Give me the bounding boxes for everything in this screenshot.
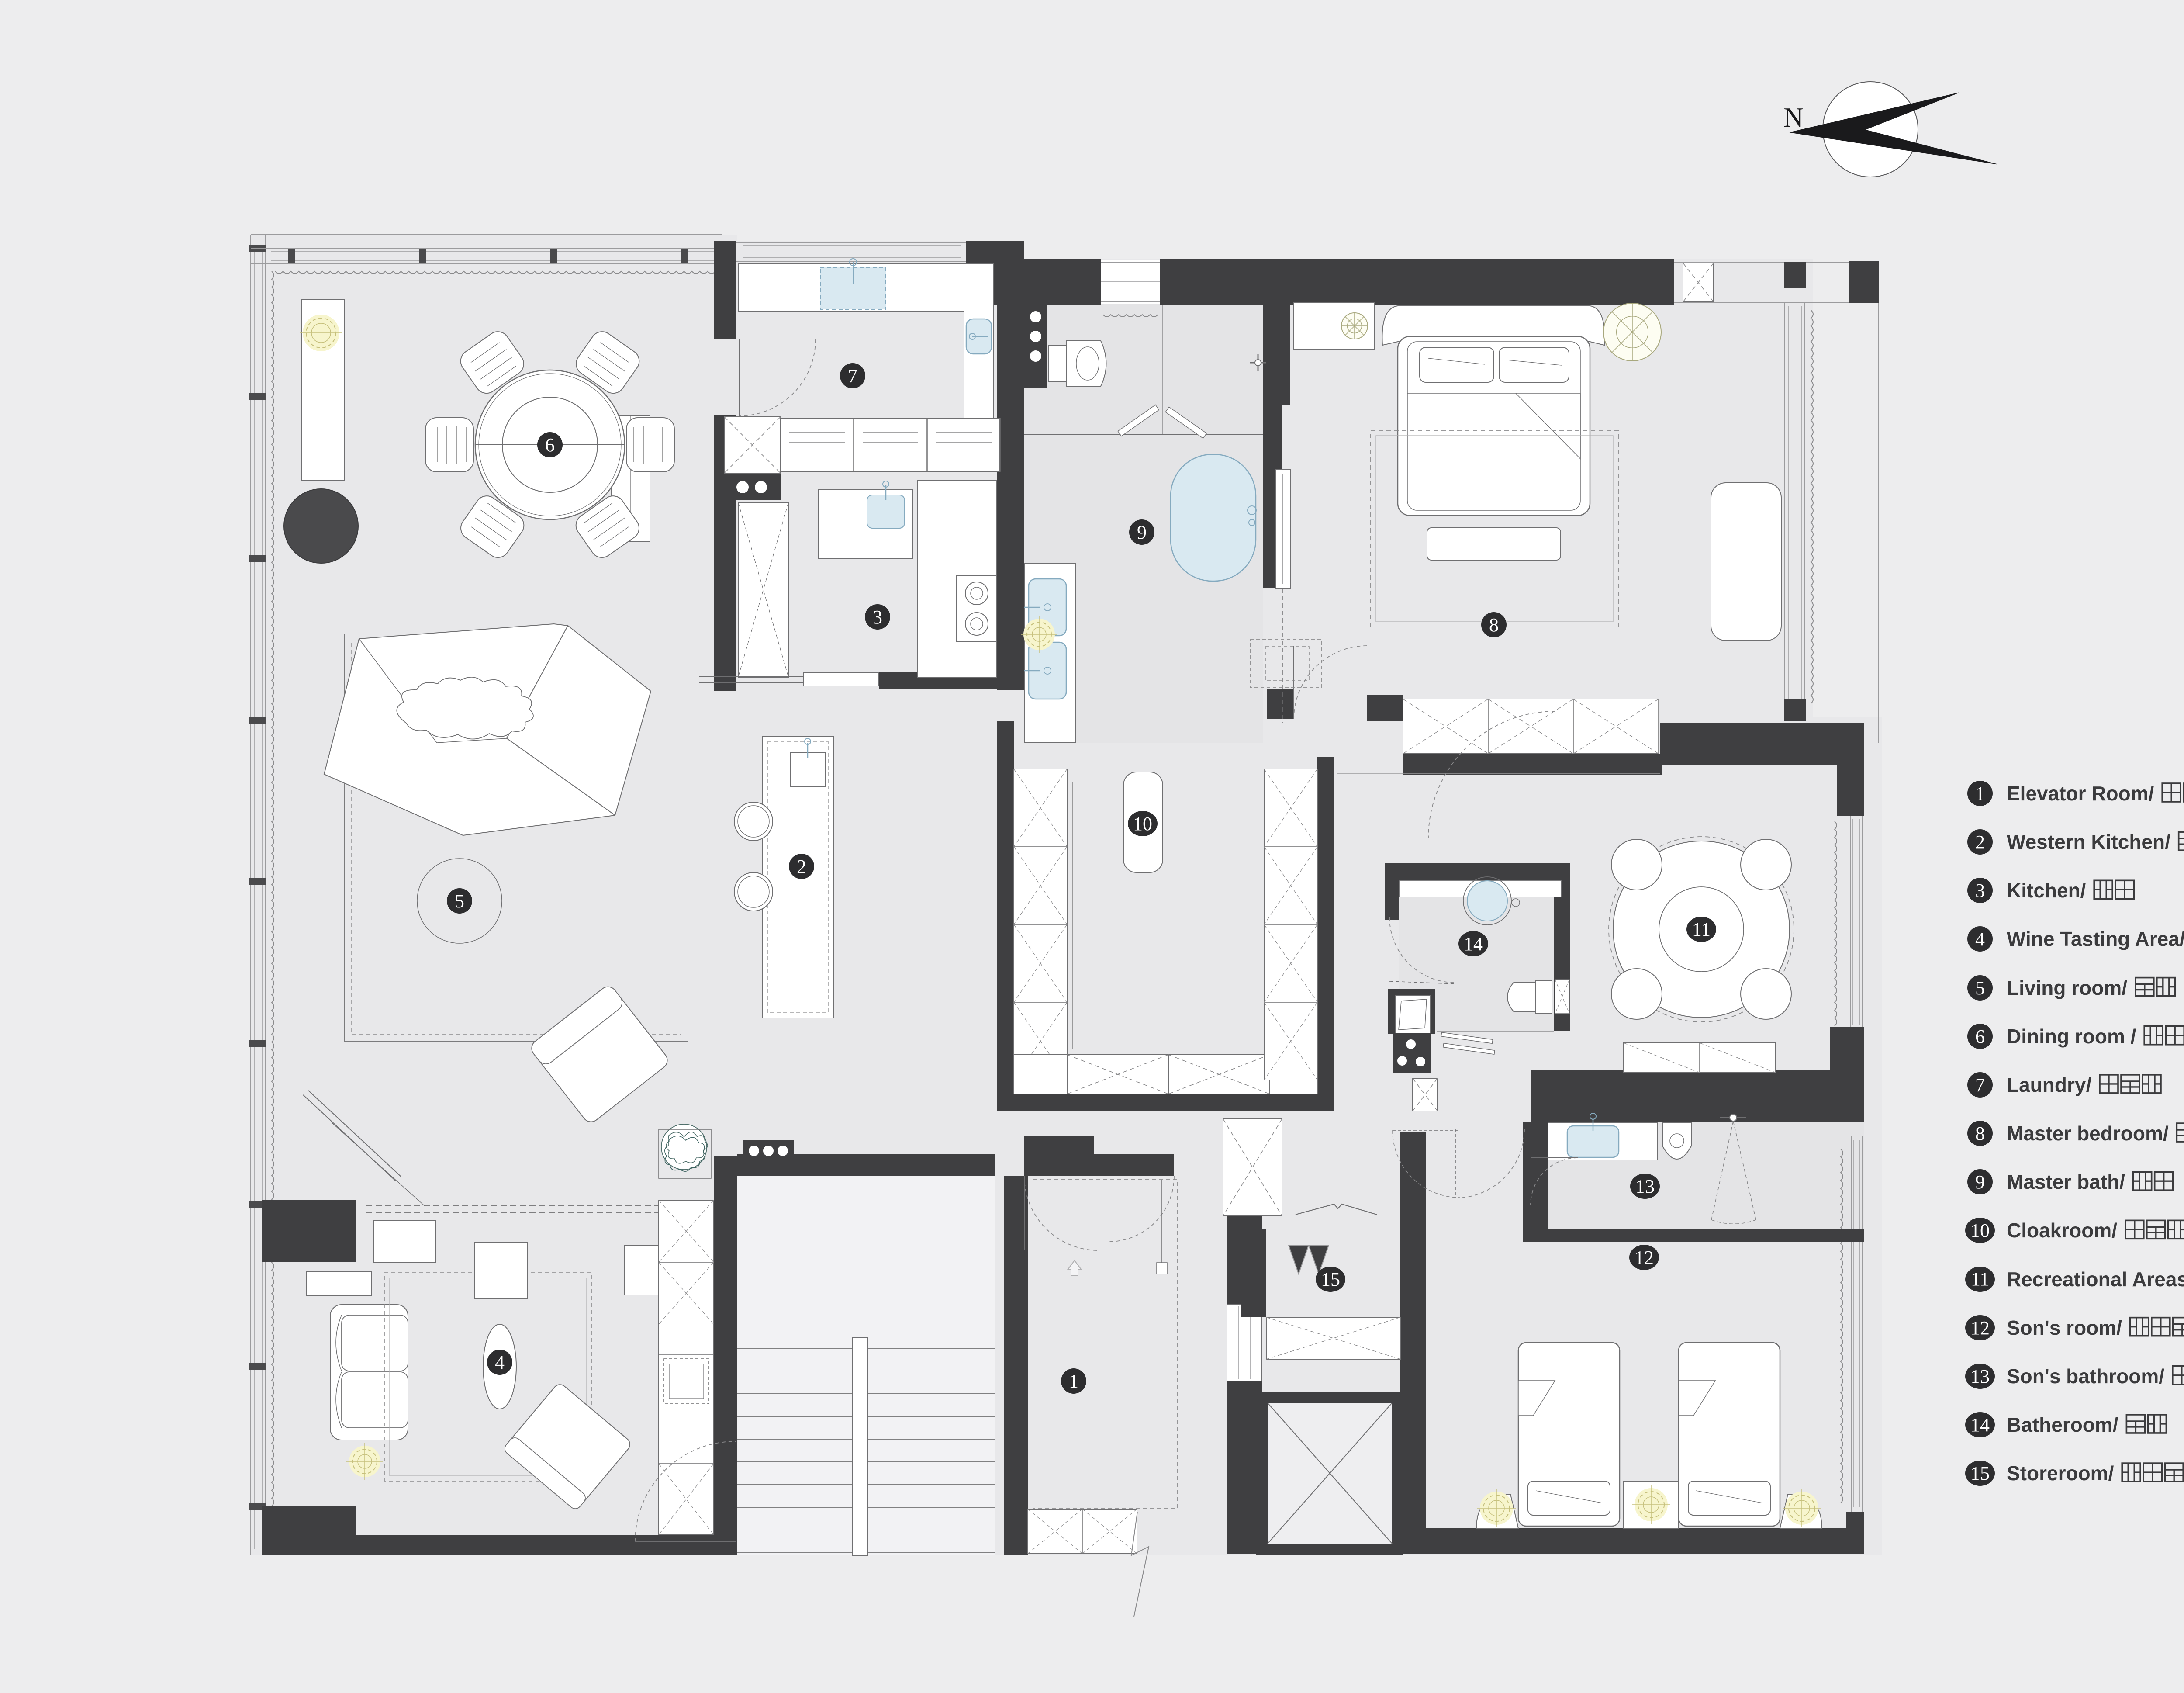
svg-text:Living room/: Living room/ bbox=[2007, 976, 2127, 999]
svg-text:15: 15 bbox=[1321, 1269, 1340, 1290]
svg-text:1: 1 bbox=[1069, 1371, 1078, 1392]
svg-text:11: 11 bbox=[1971, 1268, 1989, 1290]
svg-text:1: 1 bbox=[1975, 783, 1985, 804]
svg-text:Master bath/: Master bath/ bbox=[2007, 1170, 2125, 1193]
svg-text:6: 6 bbox=[545, 434, 555, 456]
svg-text:Master bedroom/: Master bedroom/ bbox=[2007, 1122, 2169, 1145]
svg-text:Cloakroom/: Cloakroom/ bbox=[2007, 1219, 2117, 1242]
svg-text:15: 15 bbox=[1970, 1463, 1990, 1484]
svg-text:5: 5 bbox=[455, 890, 464, 912]
svg-text:Western Kitchen/: Western Kitchen/ bbox=[2007, 831, 2170, 853]
svg-text:11: 11 bbox=[1692, 919, 1711, 940]
svg-text:2: 2 bbox=[797, 856, 806, 877]
svg-text:9: 9 bbox=[1137, 522, 1147, 543]
svg-text:Elevator Room/: Elevator Room/ bbox=[2007, 782, 2154, 805]
svg-text:3: 3 bbox=[873, 606, 882, 628]
svg-text:9: 9 bbox=[1975, 1171, 1985, 1193]
svg-text:8: 8 bbox=[1975, 1123, 1985, 1144]
svg-text:8: 8 bbox=[1489, 614, 1499, 636]
svg-text:Recreational Areas/: Recreational Areas/ bbox=[2007, 1268, 2184, 1291]
svg-text:13: 13 bbox=[1970, 1366, 1990, 1387]
svg-text:Dining room /: Dining room / bbox=[2007, 1025, 2136, 1048]
svg-text:Storeroom/: Storeroom/ bbox=[2007, 1462, 2114, 1485]
svg-text:N: N bbox=[1783, 102, 1804, 133]
svg-text:Laundry/: Laundry/ bbox=[2007, 1073, 2091, 1096]
svg-text:Kitchen/: Kitchen/ bbox=[2007, 879, 2086, 902]
svg-text:Son's bathroom/: Son's bathroom/ bbox=[2007, 1365, 2164, 1388]
svg-text:7: 7 bbox=[1975, 1074, 1985, 1096]
svg-text:Son's room/: Son's room/ bbox=[2007, 1316, 2122, 1339]
svg-text:14: 14 bbox=[1464, 933, 1483, 955]
svg-text:12: 12 bbox=[1635, 1247, 1654, 1268]
svg-text:7: 7 bbox=[848, 365, 857, 387]
svg-text:4: 4 bbox=[495, 1352, 505, 1373]
svg-text:4: 4 bbox=[1975, 928, 1985, 950]
svg-text:10: 10 bbox=[1133, 813, 1152, 834]
svg-text:Wine Tasting Area/: Wine Tasting Area/ bbox=[2007, 928, 2184, 950]
svg-text:3: 3 bbox=[1975, 880, 1985, 901]
svg-text:Batheroom/: Batheroom/ bbox=[2007, 1413, 2118, 1436]
svg-text:10: 10 bbox=[1970, 1220, 1990, 1241]
svg-text:14: 14 bbox=[1970, 1414, 1990, 1436]
svg-text:5: 5 bbox=[1975, 977, 1985, 999]
svg-text:6: 6 bbox=[1975, 1026, 1985, 1047]
svg-text:13: 13 bbox=[1635, 1176, 1655, 1197]
svg-text:2: 2 bbox=[1975, 831, 1985, 853]
svg-text:12: 12 bbox=[1970, 1317, 1990, 1339]
